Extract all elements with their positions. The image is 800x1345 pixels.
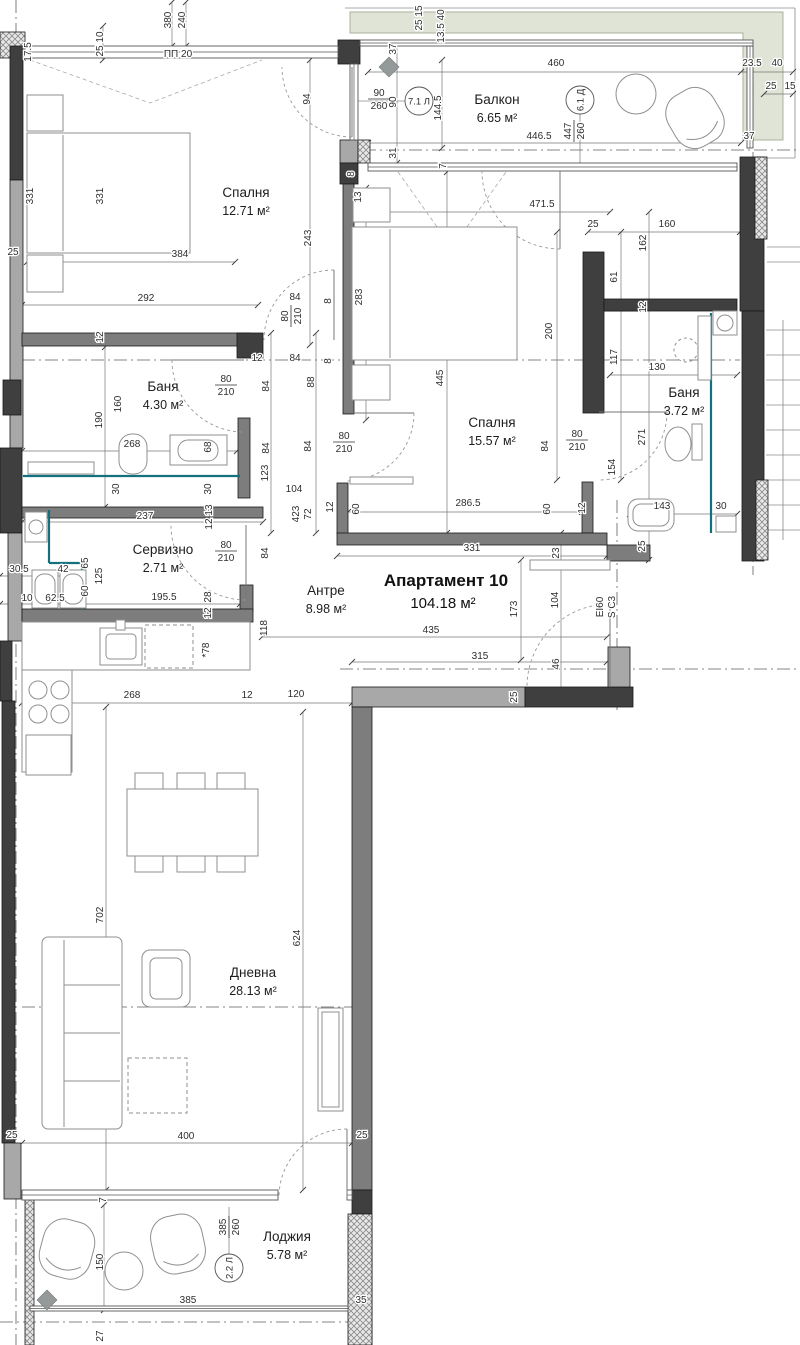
dimension-label: 84 (261, 380, 272, 392)
dimension-label: 37 (388, 43, 399, 55)
wall (352, 707, 372, 1190)
dimension-label: 160 (659, 219, 676, 230)
fraction-top: 90 (373, 88, 385, 99)
reference-circle-label: 7.1 Л (408, 97, 430, 108)
room-label: Сервизно (133, 542, 194, 557)
dimension-label: 8 (323, 358, 334, 364)
dimension-label: 72 (303, 508, 314, 520)
dimension-label: 268 (124, 690, 141, 701)
dimension-label: 118 (259, 620, 270, 636)
dimension-label: 150 (95, 1253, 106, 1270)
room-label: Баня (668, 385, 699, 400)
door-arc (264, 270, 334, 340)
dimension-fraction: 385260 (218, 1216, 242, 1238)
dimension-label: 243 (303, 229, 314, 246)
dimension-label: 120 (288, 689, 305, 700)
furniture-rect (177, 773, 205, 789)
dimension-label: 65 (80, 557, 91, 569)
wall (755, 157, 767, 239)
furniture-rect (27, 255, 63, 292)
dimension-fraction: 90260 (368, 88, 390, 112)
dimension-label: 12 (241, 690, 253, 701)
dimension-label: 25 (509, 691, 520, 703)
window-opening-indicator (30, 60, 262, 103)
room-area-label: 2.71 м² (143, 561, 184, 575)
fraction-bottom: 210 (569, 442, 586, 453)
room-label: Дневна (230, 965, 277, 980)
dimension-label: 30 (111, 483, 122, 495)
dimension-label: 331 (464, 543, 481, 554)
dimension-label: 173 (509, 600, 520, 617)
furniture-rect (26, 735, 71, 775)
wall (604, 299, 737, 311)
dimension-label: 12 (638, 301, 649, 313)
dimension-label: 104 (550, 591, 561, 608)
wall (358, 140, 370, 163)
wall (352, 1190, 372, 1214)
furniture-rect (150, 958, 182, 999)
dimension-label: 15 (784, 81, 796, 92)
dimension-fraction: 80210 (566, 429, 588, 453)
dimension-label: 94 (302, 93, 313, 105)
dimension-label: 27 (95, 1330, 106, 1342)
dimension-label: 331 (25, 187, 36, 204)
dimension-label: 195.5 (151, 592, 176, 603)
dimension-label: 154 (607, 458, 618, 475)
wall (352, 687, 525, 707)
armchair (34, 1214, 99, 1283)
room-label: Балкон (474, 92, 519, 107)
furniture-rect (322, 1012, 339, 1107)
dimension-label: EI60 (595, 596, 606, 617)
wall (238, 418, 250, 498)
dimension-label: 162 (638, 234, 649, 251)
dimension-label: 25 (637, 540, 648, 552)
dimension-label: 435 (423, 625, 440, 636)
dimension-label: 143 (654, 501, 671, 512)
dimension-fraction: 80210 (215, 374, 237, 398)
furniture-rect (350, 477, 413, 484)
apartment-title: Апартамент 10 (384, 571, 508, 590)
dimension-label: 117 (609, 349, 620, 365)
dimension-label: 12 (251, 353, 263, 364)
door-arc (282, 67, 352, 137)
wall (756, 480, 768, 560)
dimension-fraction: 447260 (563, 120, 587, 142)
dimension-label: 17.5 (23, 42, 34, 62)
wall (348, 1214, 372, 1345)
dimension-label: 200 (544, 322, 555, 339)
dimension-label: 10 (21, 593, 33, 604)
dimension-label: 25 (587, 219, 599, 230)
furniture-rect (692, 424, 702, 460)
floor-plan: 38024025 1017.5ПП 203725 1513.5 4046023.… (0, 0, 800, 1345)
dimension-label: 84 (289, 292, 301, 303)
dimension-label: 237 (137, 511, 154, 522)
wall (525, 687, 633, 707)
room-area-label: 6.65 м² (477, 111, 518, 125)
wall (4, 1143, 21, 1199)
armchair-outline (34, 1214, 99, 1283)
room-label: Спалня (222, 185, 269, 200)
fraction-top: 80 (220, 374, 232, 385)
dimension-label: 60 (80, 585, 91, 597)
wall (22, 333, 250, 346)
dimension-label: 62.5 (45, 593, 65, 604)
armchair (658, 80, 732, 156)
dimension-label: 460 (548, 58, 565, 69)
dimension-label: 25 (6, 1130, 18, 1141)
dimension-label: 60 (542, 503, 553, 515)
dimension-label: 12 (204, 518, 215, 530)
dimension-label: 61 (609, 271, 620, 283)
furniture-dashed-circle (674, 338, 698, 362)
fraction-bottom: 210 (336, 444, 353, 455)
fraction-bottom: 210 (218, 387, 235, 398)
wall (2, 701, 15, 1143)
dimension-label: 471.5 (529, 199, 554, 210)
dimension-label: 624 (292, 929, 303, 946)
wall (22, 609, 253, 622)
dimension-label: 331 (95, 187, 106, 204)
dimension-label: 446.5 (526, 131, 551, 142)
dimension-label: 25 10 (95, 31, 106, 56)
toilet-bowl (665, 427, 691, 461)
room-area-label: 28.13 м² (229, 984, 277, 998)
armchair-outline (147, 1210, 210, 1278)
fraction-top: 80 (280, 310, 291, 322)
furniture-rect (27, 133, 190, 253)
dimension-label: 12 (203, 607, 214, 619)
dimension-fraction: 80210 (333, 431, 355, 455)
dimension-label: 68 (203, 441, 214, 453)
apartment-area: 104.18 м² (410, 595, 475, 612)
fraction-top: 447 (563, 122, 574, 139)
dimension-fraction: 80210 (215, 540, 237, 564)
dimension-label: 400 (178, 1131, 195, 1142)
dimension-label: 13.5 40 (436, 9, 447, 43)
dimension-label: 23 (551, 547, 562, 559)
dimension-label: 84 (260, 547, 271, 559)
dimension-label: 12 (325, 501, 336, 513)
dimension-label: 125 (94, 567, 105, 584)
wall (3, 380, 21, 415)
room-area-label: 8.98 м² (306, 602, 347, 616)
dimension-label: 190 (94, 411, 105, 428)
fraction-top: 80 (220, 540, 232, 551)
dimension-label: 40 (771, 58, 783, 69)
furniture-rect (135, 856, 163, 872)
fraction-top: 80 (338, 431, 350, 442)
dimension-label: 380 (163, 11, 174, 28)
dimension-label: 384 (172, 249, 189, 260)
furniture-rect (352, 227, 517, 360)
dimension-label: 25 (356, 1130, 368, 1141)
furniture-rect (716, 516, 736, 532)
dimension-label: 28 (203, 591, 214, 603)
dimension-label: 84 (540, 440, 551, 452)
dimension-label: 46 (551, 658, 562, 670)
dimension-label: 7 (98, 1197, 109, 1203)
reference-circle-label: 2.2 Л (225, 1257, 236, 1279)
dimension-label: 12 (577, 502, 588, 514)
dimension-label: 23.5 (742, 58, 762, 69)
furniture-rect (217, 856, 245, 872)
wall (583, 252, 604, 413)
furniture-rect (217, 773, 245, 789)
room-label: Спалня (468, 415, 515, 430)
dimension-label: S C3 (607, 595, 618, 618)
dimension-label: 268 (124, 439, 141, 450)
dimension-label: 30.5 (9, 564, 29, 575)
wall (338, 40, 360, 64)
fraction-top: 80 (571, 429, 583, 440)
dimension-label: *78 (201, 642, 212, 657)
fraction-bottom: 210 (218, 553, 235, 564)
furniture-rect (352, 365, 390, 400)
dimension-label: 88 (306, 376, 317, 388)
armchair-outline (658, 80, 732, 156)
dimension-label: 84 (261, 442, 272, 454)
dimension-label: 13 (204, 504, 215, 516)
door-arc (279, 1129, 347, 1197)
furniture-rect (127, 789, 258, 856)
room-area-label: 5.78 м² (267, 1248, 308, 1262)
dimension-label: 702 (95, 906, 106, 923)
dimension-label: 90 (388, 96, 399, 108)
reference-circle-label: 6.1 Д (576, 88, 587, 111)
dimension-label: ПП 20 (164, 49, 193, 60)
dimension-label: 123 (260, 464, 271, 481)
furniture-dashed-rect (128, 1058, 187, 1113)
wall (608, 647, 630, 687)
dimension-label: 240 (177, 11, 188, 28)
furniture-rect (530, 560, 610, 570)
dimension-label: 7 (438, 163, 449, 169)
dimension-label: 13 (353, 191, 364, 203)
floor-plan-canvas: 38024025 1017.5ПП 203725 1513.5 4046023.… (0, 0, 800, 1345)
dimension-label: 25 15 (414, 5, 425, 30)
dimension-label: 130 (649, 362, 666, 373)
fraction-top: 385 (218, 1218, 229, 1235)
dimension-label: 423 (291, 505, 302, 522)
dimension-label: 283 (354, 288, 365, 305)
dimension-label: 286.5 (455, 498, 480, 509)
furniture-rect (135, 773, 163, 789)
wall (10, 46, 23, 180)
furniture-circle (105, 1252, 143, 1290)
dimension-label: 144.5 (433, 95, 444, 120)
dimension-label: 84 (303, 440, 314, 452)
room-area-label: 12.71 м² (222, 204, 270, 218)
dimension-label: 8 (323, 298, 334, 304)
dimension-label: 292 (138, 293, 155, 304)
dimension-label: 25 (7, 247, 19, 258)
room-area-label: 3.72 м² (664, 404, 705, 418)
wall (8, 533, 22, 641)
dimension-label: 445 (435, 369, 446, 386)
dimension-label: 60 (351, 503, 362, 515)
furniture-rect (27, 95, 63, 131)
dimension-label: 31 (388, 147, 399, 159)
dimension-label: 160 (113, 395, 124, 412)
dimension-label: 104 (286, 484, 303, 495)
furniture-rect (28, 462, 94, 474)
furniture-rect (25, 512, 47, 542)
door-arc (346, 413, 414, 481)
furniture-rect (116, 620, 125, 630)
wall (0, 448, 22, 533)
room-area-label: 15.57 м² (468, 434, 516, 448)
dimension-label: 42 (57, 564, 69, 575)
fraction-bottom: 260 (576, 122, 587, 139)
dimension-label: 271 (637, 428, 648, 445)
dimension-fraction: 80210 (280, 305, 304, 327)
dimension-label: 385 (180, 1295, 197, 1306)
dimension-label: 30 (203, 483, 214, 495)
dimension-label: 37 (743, 131, 755, 142)
fraction-bottom: 260 (371, 101, 388, 112)
furniture-rect (177, 856, 205, 872)
dimension-label: 25 (765, 81, 777, 92)
fraction-bottom: 210 (293, 307, 304, 324)
wall (25, 1198, 34, 1345)
wall (337, 483, 348, 534)
column-marker (379, 57, 399, 77)
room-label: Лоджия (263, 1229, 311, 1244)
armchair (147, 1210, 210, 1278)
dimension-label: 30 (715, 501, 727, 512)
room-label: Баня (147, 379, 178, 394)
dimension-label: 35 (355, 1295, 367, 1306)
furniture-circle (616, 74, 656, 114)
wall (340, 140, 358, 163)
dimension-label: 12 (95, 331, 106, 343)
room-label: Антре (307, 583, 345, 598)
fraction-bottom: 260 (231, 1218, 242, 1235)
dimension-label: 315 (472, 651, 489, 662)
dimension-label: 84 (289, 353, 301, 364)
room-area-label: 4.30 м² (143, 398, 184, 412)
wall (0, 641, 12, 701)
furniture-rect (106, 634, 136, 659)
furniture-rect (698, 316, 711, 380)
dimension-label: 8 (346, 171, 357, 177)
